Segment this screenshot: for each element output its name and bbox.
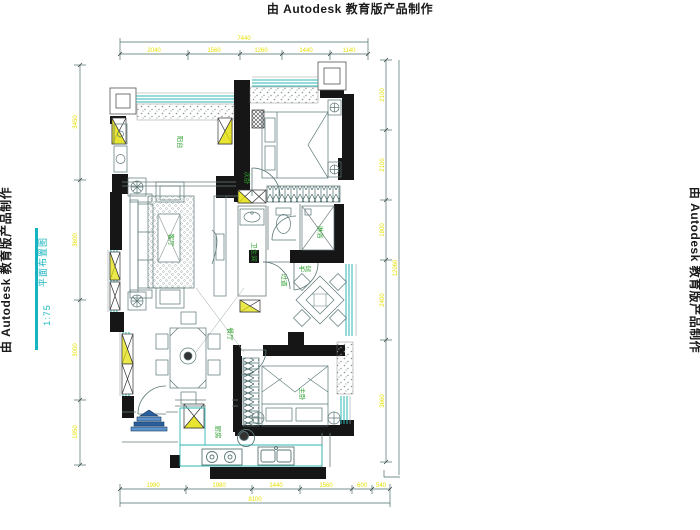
armchair [156, 288, 184, 308]
dim-bottom-seg: 1980 [212, 483, 226, 489]
chair [156, 334, 168, 349]
chair [181, 392, 196, 404]
window-xbox [110, 282, 120, 310]
planter-hatch-balcony [137, 104, 234, 120]
dim-bottom-seg: 1980 [146, 483, 160, 489]
planter-hatch-bedroom2 [250, 87, 318, 103]
dim-right-seg: 2100 [380, 158, 386, 172]
sink [258, 447, 294, 466]
side-table-plant [128, 178, 146, 196]
watermark-top: 由 Autodesk 教育版产品制作 [267, 1, 433, 16]
dimension-text-top: 7440 2040 1560 1260 1440 1140 [147, 36, 356, 54]
square-table [296, 276, 344, 324]
dim-right-seg: 2100 [380, 88, 386, 102]
room-label-shower: 淋浴 [316, 226, 325, 240]
side-table-plant [128, 292, 146, 310]
room-label-bedroom2: 次卧 [243, 172, 252, 186]
dim-bottom-seg: 1440 [269, 483, 283, 489]
dim-top-seg: 1260 [254, 48, 268, 54]
corridor-xbox [240, 300, 260, 312]
chair [181, 312, 196, 324]
floorplan-drawing: 由 Autodesk 教育版产品制作 由 Autodesk 教育版产品制作 由 … [0, 0, 700, 530]
dim-left-seg: 3000 [73, 343, 79, 357]
room-label-master: 主卧 [298, 388, 307, 402]
watermark-left: 由 Autodesk 教育版产品制作 [0, 187, 13, 353]
washbasin [240, 209, 264, 225]
door-entry [138, 386, 166, 414]
tv-cabinet [212, 196, 226, 296]
room-label-living: 客厅 [167, 234, 176, 248]
chair [156, 360, 168, 375]
prep-bowl [238, 430, 255, 447]
room-label-hallway: 过道 [280, 274, 289, 288]
dim-bottom-overall: 8100 [248, 497, 262, 503]
toilet [276, 208, 291, 234]
dimension-text-right: 2100 2100 1800 2400 3660 12060 [380, 88, 399, 408]
room-bedroom2 [262, 100, 341, 202]
window-xbox [110, 252, 120, 280]
dim-right-overall: 12060 [393, 259, 399, 276]
dim-top-seg: 1560 [207, 48, 221, 54]
nightstand [252, 412, 264, 424]
wardrobe [267, 186, 340, 202]
dim-bottom-seg: 1560 [319, 483, 333, 489]
room-label-bathroom: 卫生间 [250, 242, 259, 262]
room-dining [156, 312, 220, 404]
room-study [294, 274, 347, 327]
dimension-text-bottom: 8100 1980 1980 1440 1560 600 540 [146, 483, 386, 503]
nightstand [328, 100, 341, 115]
dim-top-seg: 1440 [299, 48, 313, 54]
sheet-title-scale: 1:75 [42, 304, 52, 326]
window-xbox [122, 364, 133, 394]
window-xbox [122, 334, 133, 364]
dim-bottom-seg: 540 [376, 483, 387, 489]
dim-left-seg: 3450 [73, 115, 79, 129]
stove [202, 449, 242, 465]
dim-left-seg: 3600 [73, 233, 79, 247]
dim-right-seg: 1800 [380, 223, 386, 237]
dim-top-seg: 2040 [147, 48, 161, 54]
dim-right-seg: 2400 [380, 293, 386, 307]
exterior-hatch-strip [337, 342, 353, 394]
cad-floorplan-sheet: 由 Autodesk 教育版产品制作 由 Autodesk 教育版产品制作 由 … [0, 0, 700, 530]
dim-top-seg: 1140 [343, 48, 357, 54]
wardrobe [243, 358, 259, 426]
dim-top-overall: 7440 [237, 36, 251, 42]
sheet-title-text: 平面布置图 [37, 237, 48, 287]
room-label-dining: 餐厅 [226, 328, 235, 342]
shaft-box [218, 118, 232, 144]
bed [262, 112, 328, 178]
dimension-text-left: 3450 3600 3000 1950 [73, 115, 79, 439]
dim-left-seg: 1950 [73, 425, 79, 439]
dim-right-seg: 3660 [380, 394, 386, 408]
room-master [243, 358, 340, 426]
dim-bottom-seg: 600 [357, 483, 368, 489]
entry-steps-symbol [131, 410, 167, 431]
room-label-kitchen: 厨房 [214, 426, 223, 439]
room-living [128, 178, 244, 352]
sheet-title: 平面布置图 1:75 [35, 228, 52, 350]
door-toilet [272, 216, 296, 240]
chair [208, 334, 220, 349]
nightstand [328, 412, 340, 424]
watermark-right: 由 Autodesk 教育版产品制作 [688, 187, 700, 353]
room-label-balcony: 阳台 [176, 136, 185, 149]
bed [262, 366, 328, 426]
room-label-study: 书房 [299, 264, 312, 273]
chair [208, 360, 220, 375]
